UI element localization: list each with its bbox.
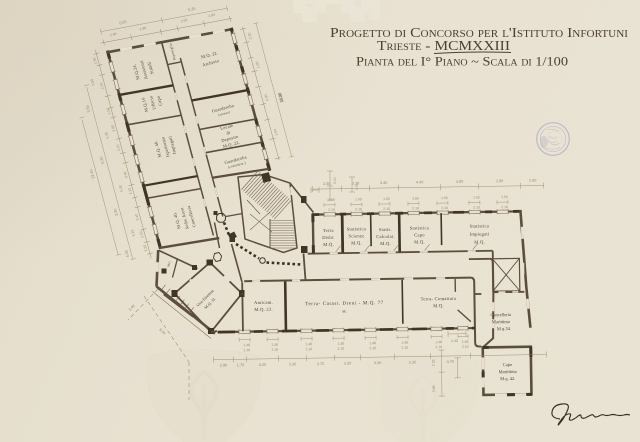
svg-text:1.70: 1.70 xyxy=(237,362,245,367)
svg-text:Statis.: Statis. xyxy=(379,227,392,232)
svg-text:2.10: 2.10 xyxy=(337,347,344,351)
svg-text:3.40: 3.40 xyxy=(380,181,387,185)
svg-text:2.10: 2.10 xyxy=(355,207,362,211)
svg-text:M.Q.: M.Q. xyxy=(351,240,362,245)
svg-text:1.48: 1.48 xyxy=(435,340,442,344)
svg-text:2.10: 2.10 xyxy=(401,346,408,350)
svg-text:1.48: 1.48 xyxy=(337,342,344,346)
svg-text:Marittima: Marittima xyxy=(499,369,517,374)
svg-text:2.10: 2.10 xyxy=(328,208,335,212)
svg-text:Cancelleria: Cancelleria xyxy=(490,312,511,317)
svg-text:3.30: 3.30 xyxy=(374,360,382,365)
svg-text:3.30: 3.30 xyxy=(289,361,297,366)
svg-text:3.40: 3.40 xyxy=(323,182,330,186)
svg-text:2.10: 2.10 xyxy=(435,345,442,349)
svg-text:2.10: 2.10 xyxy=(305,347,312,351)
svg-text:M.Q.: M.Q. xyxy=(414,239,425,244)
svg-text:1.50: 1.50 xyxy=(355,197,362,201)
svg-text:2.10: 2.10 xyxy=(412,206,419,210)
svg-text:M.Q. 23.: M.Q. 23. xyxy=(254,307,273,312)
svg-text:Statistica: Statistica xyxy=(410,225,429,230)
svg-text:M.Q.: M.Q. xyxy=(380,241,391,246)
svg-text:3.84: 3.84 xyxy=(432,385,436,392)
svg-text:Disbr.: Disbr. xyxy=(322,235,335,240)
svg-text:2.10: 2.10 xyxy=(243,348,250,352)
svg-text:1.48: 1.48 xyxy=(369,341,376,345)
svg-text:1.48: 1.48 xyxy=(271,343,278,347)
svg-text:2.10: 2.10 xyxy=(369,346,376,350)
svg-text:Terra: Terra xyxy=(323,228,334,233)
svg-text:M.q.34.: M.q.34. xyxy=(497,326,511,331)
svg-text:4.80: 4.80 xyxy=(456,180,463,184)
svg-text:1.50: 1.50 xyxy=(412,196,419,200)
svg-text:2.10: 2.10 xyxy=(462,345,469,349)
svg-text:3.70: 3.70 xyxy=(317,361,325,366)
svg-text:Capo: Capo xyxy=(503,362,513,367)
svg-text:4.70: 4.70 xyxy=(447,359,455,364)
svg-text:1.50: 1.50 xyxy=(501,195,508,199)
svg-text:4.20: 4.20 xyxy=(259,362,267,367)
svg-text:Terra- Comattura: Terra- Comattura xyxy=(421,296,457,302)
svg-text:Pianta del I° Piano ~ Scala di: Pianta del I° Piano ~ Scala di 1/100 xyxy=(356,54,568,69)
svg-text:1.50: 1.50 xyxy=(441,196,448,200)
svg-text:1.50: 1.50 xyxy=(383,197,390,201)
svg-text:3.30: 3.30 xyxy=(409,359,417,364)
svg-text:M.Q.: M.Q. xyxy=(433,303,444,308)
svg-text:2.10: 2.10 xyxy=(441,206,448,210)
svg-text:1.48: 1.48 xyxy=(305,342,312,346)
svg-text:2.25: 2.25 xyxy=(431,359,435,366)
svg-text:1.50: 1.50 xyxy=(355,183,359,190)
svg-text:2.10: 2.10 xyxy=(501,205,508,209)
svg-text:2.40: 2.40 xyxy=(451,339,458,343)
svg-text:3.00: 3.00 xyxy=(333,177,337,184)
svg-text:M.q. 42.: M.q. 42. xyxy=(500,376,515,381)
svg-text:2.60: 2.60 xyxy=(529,179,536,183)
svg-text:M.: M. xyxy=(342,310,347,314)
svg-text:Anticam.: Anticam. xyxy=(254,300,273,305)
svg-text:Statistica: Statistica xyxy=(470,223,489,228)
svg-text:Calcolat.: Calcolat. xyxy=(376,234,395,239)
svg-text:3.30: 3.30 xyxy=(344,361,352,366)
svg-text:1.48: 1.48 xyxy=(462,340,469,344)
svg-text:1.48: 1.48 xyxy=(243,343,250,347)
svg-text:2.10: 2.10 xyxy=(383,207,390,211)
svg-text:4.40: 4.40 xyxy=(416,180,423,184)
svg-text:M.Q.: M.Q. xyxy=(474,239,485,244)
svg-text:1.48: 1.48 xyxy=(401,341,408,345)
svg-text:1.50: 1.50 xyxy=(473,195,480,199)
svg-text:2.80: 2.80 xyxy=(496,179,503,183)
svg-text:Marittima: Marittima xyxy=(492,319,510,324)
svg-text:Impiegati: Impiegati xyxy=(469,231,489,236)
svg-text:M.Q.: M.Q. xyxy=(323,242,334,247)
svg-text:2.10: 2.10 xyxy=(271,348,278,352)
svg-text:Statistica: Statistica xyxy=(347,226,366,231)
svg-text:2.10: 2.10 xyxy=(473,205,480,209)
svg-text:Scienze: Scienze xyxy=(348,233,364,238)
svg-text:Capo: Capo xyxy=(414,232,425,237)
svg-text:Trieste - MCMXXIII: Trieste - MCMXXIII xyxy=(377,38,511,53)
svg-text:2.90: 2.90 xyxy=(220,362,228,367)
